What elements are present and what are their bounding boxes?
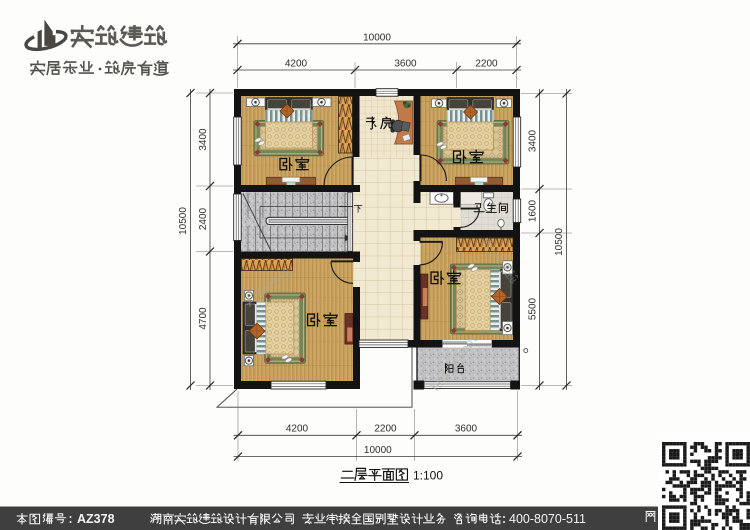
svg-text:10500: 10500 bbox=[554, 228, 565, 256]
svg-text:3400: 3400 bbox=[528, 129, 539, 152]
svg-text:3600: 3600 bbox=[455, 424, 478, 435]
svg-text:4200: 4200 bbox=[285, 59, 308, 70]
svg-text:4200: 4200 bbox=[286, 424, 309, 435]
svg-text:3600: 3600 bbox=[394, 59, 417, 70]
svg-text:10000: 10000 bbox=[364, 445, 392, 456]
svg-text:3400: 3400 bbox=[198, 128, 209, 151]
svg-text:AZ378: AZ378 bbox=[77, 512, 115, 526]
svg-text:10000: 10000 bbox=[363, 33, 391, 44]
svg-text:5500: 5500 bbox=[528, 297, 539, 320]
svg-text:2200: 2200 bbox=[475, 59, 498, 70]
svg-text:2400: 2400 bbox=[198, 207, 209, 230]
svg-text:1600: 1600 bbox=[528, 199, 539, 222]
svg-text:2200: 2200 bbox=[374, 424, 397, 435]
svg-text:400-8070-511: 400-8070-511 bbox=[509, 512, 586, 526]
svg-text:10500: 10500 bbox=[178, 207, 189, 235]
svg-text:4700: 4700 bbox=[198, 307, 209, 330]
svg-text:1:100: 1:100 bbox=[413, 469, 443, 483]
